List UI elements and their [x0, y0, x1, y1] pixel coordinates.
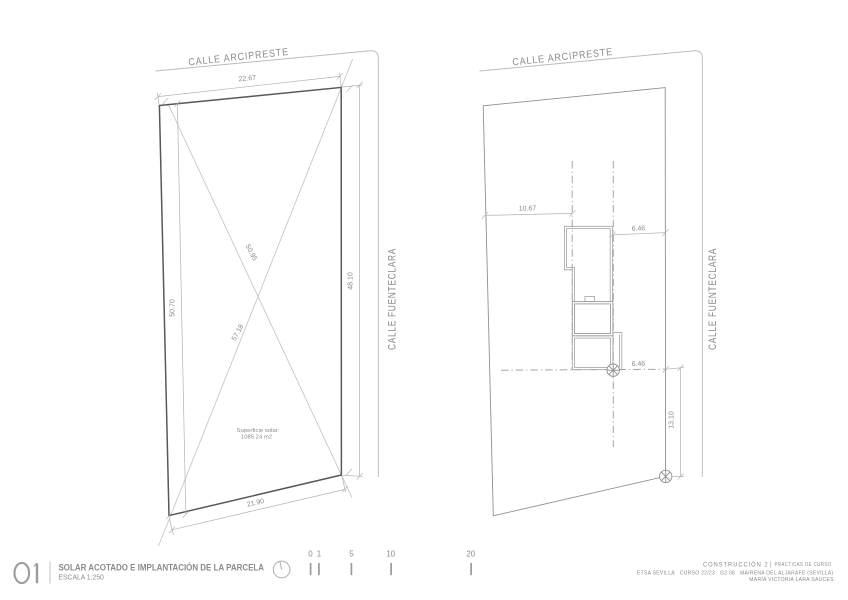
svg-text:13.10: 13.10 [669, 411, 676, 429]
svg-text:PRÁCTICAS DE CURSO: PRÁCTICAS DE CURSO [775, 561, 832, 568]
svg-text:1: 1 [317, 550, 322, 559]
svg-text:0: 0 [308, 550, 313, 559]
svg-text:1085.24 m2: 1085.24 m2 [241, 435, 272, 441]
svg-text:10.67: 10.67 [519, 205, 537, 212]
svg-text:10: 10 [386, 550, 395, 559]
svg-text:Superficie solar:: Superficie solar: [237, 428, 280, 434]
svg-text:CALLE FUENTECLARA: CALLE FUENTECLARA [707, 248, 719, 350]
svg-text:MARÍA VICTORIA LARA SAUCES: MARÍA VICTORIA LARA SAUCES [749, 576, 834, 583]
svg-text:50.70: 50.70 [170, 299, 177, 317]
svg-text:CONSTRUCCIÓN 2: CONSTRUCCIÓN 2 [703, 559, 769, 568]
svg-text:SOLAR ACOTADO E IMPLANTACIÓN D: SOLAR ACOTADO E IMPLANTACIÓN DE LA PARCE… [59, 561, 265, 572]
svg-text:ETSA SEVILLA CURSO 22/23 G: ETSA SEVILLA CURSO 22/23 G2.08 MAIRENA D… [637, 570, 834, 576]
svg-text:CALLE FUENTECLARA: CALLE FUENTECLARA [387, 248, 399, 350]
svg-text:ESCALA 1:250: ESCALA 1:250 [59, 575, 104, 582]
svg-text:48.10: 48.10 [348, 272, 355, 290]
svg-text:6.46: 6.46 [632, 225, 646, 232]
svg-text:20: 20 [466, 550, 475, 559]
svg-text:5: 5 [349, 550, 354, 559]
svg-text:6.46: 6.46 [632, 361, 646, 368]
